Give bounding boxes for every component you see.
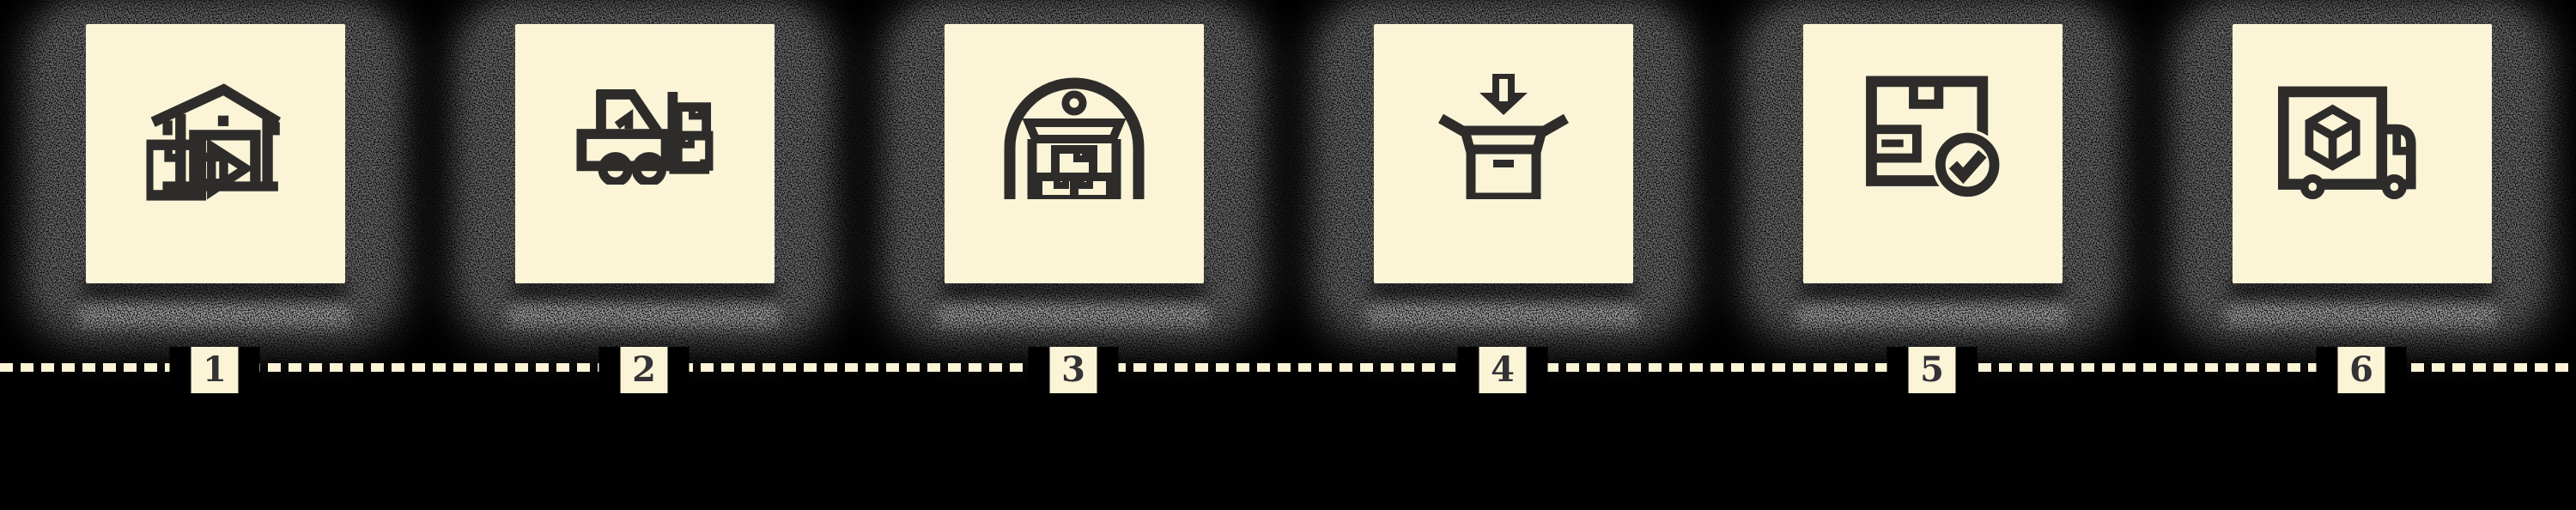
forklift-boxes-icon xyxy=(577,88,714,185)
step-number-badge-3: 3 xyxy=(1029,347,1119,393)
step-number-badge-1: 1 xyxy=(170,347,260,393)
warehouse-storage-icon xyxy=(1004,74,1145,199)
step-card-4 xyxy=(1374,24,1633,283)
step-2: 2 xyxy=(429,0,859,510)
step-number-badge-2: 2 xyxy=(599,347,690,393)
step-number: 4 xyxy=(1479,347,1527,393)
step-4: 4 xyxy=(1288,0,1717,510)
step-number: 1 xyxy=(191,347,239,393)
step-card-3 xyxy=(945,24,1204,283)
package-check-icon xyxy=(1865,76,2002,202)
step-card-6 xyxy=(2233,24,2492,283)
step-number: 6 xyxy=(2338,347,2385,393)
step-5: 5 xyxy=(1717,0,2147,510)
step-number: 5 xyxy=(1909,347,1956,393)
step-3: 3 xyxy=(859,0,1288,510)
step-number-badge-4: 4 xyxy=(1458,347,1548,393)
step-card-5 xyxy=(1803,24,2063,283)
delivery-truck-icon xyxy=(2278,86,2447,204)
step-6: 6 xyxy=(2147,0,2576,510)
box-packing-icon xyxy=(1433,74,1574,199)
step-card-1 xyxy=(86,24,345,283)
process-strip: 1 2 xyxy=(0,0,2576,510)
step-1: 1 xyxy=(0,0,429,510)
step-number-badge-6: 6 xyxy=(2317,347,2407,393)
timeline-dashed-line xyxy=(0,363,2576,372)
step-card-2 xyxy=(515,24,775,283)
warehouse-inbound-icon xyxy=(147,80,285,202)
step-number-badge-5: 5 xyxy=(1887,347,1978,393)
step-number: 2 xyxy=(621,347,668,393)
step-number: 3 xyxy=(1050,347,1097,393)
